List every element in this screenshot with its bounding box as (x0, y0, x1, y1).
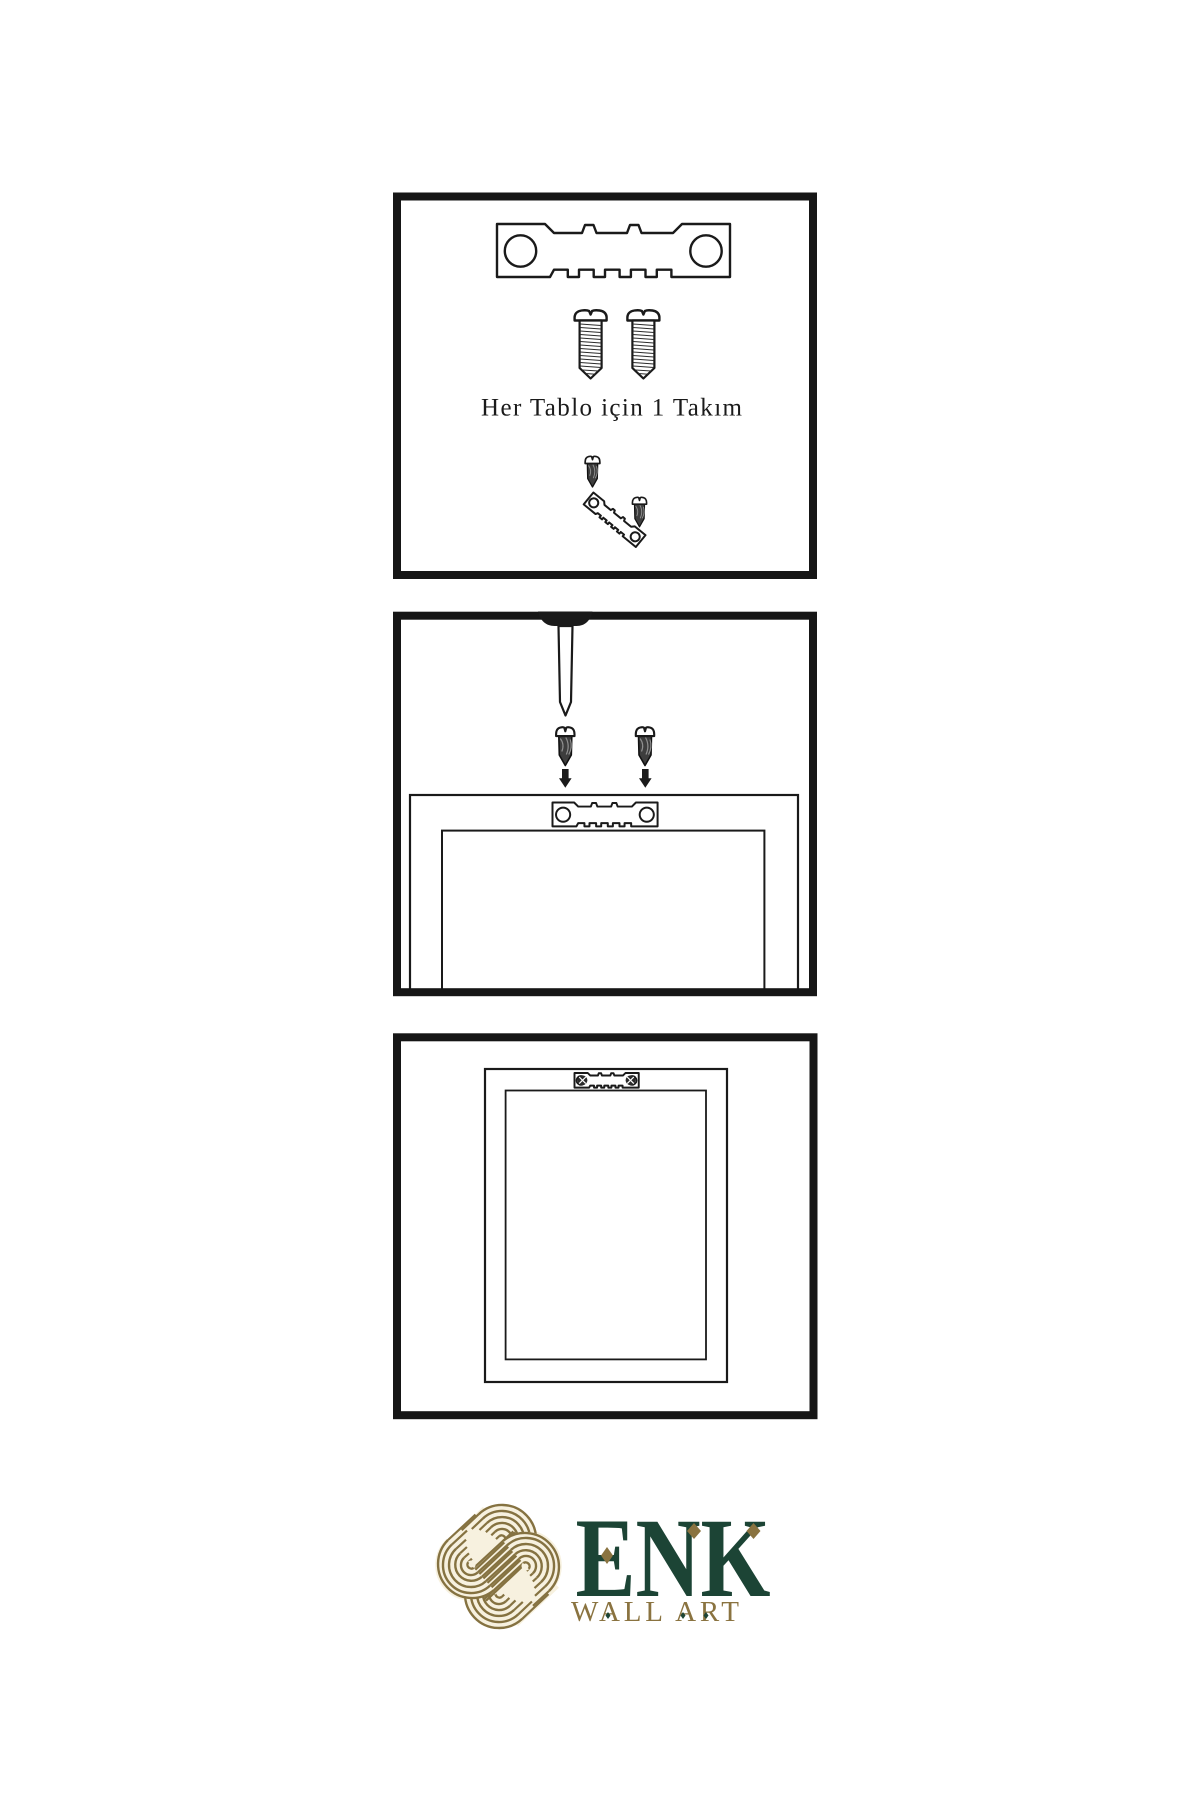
svg-text:Her Tablo için 1 Takım: Her Tablo için 1 Takım (481, 395, 743, 422)
